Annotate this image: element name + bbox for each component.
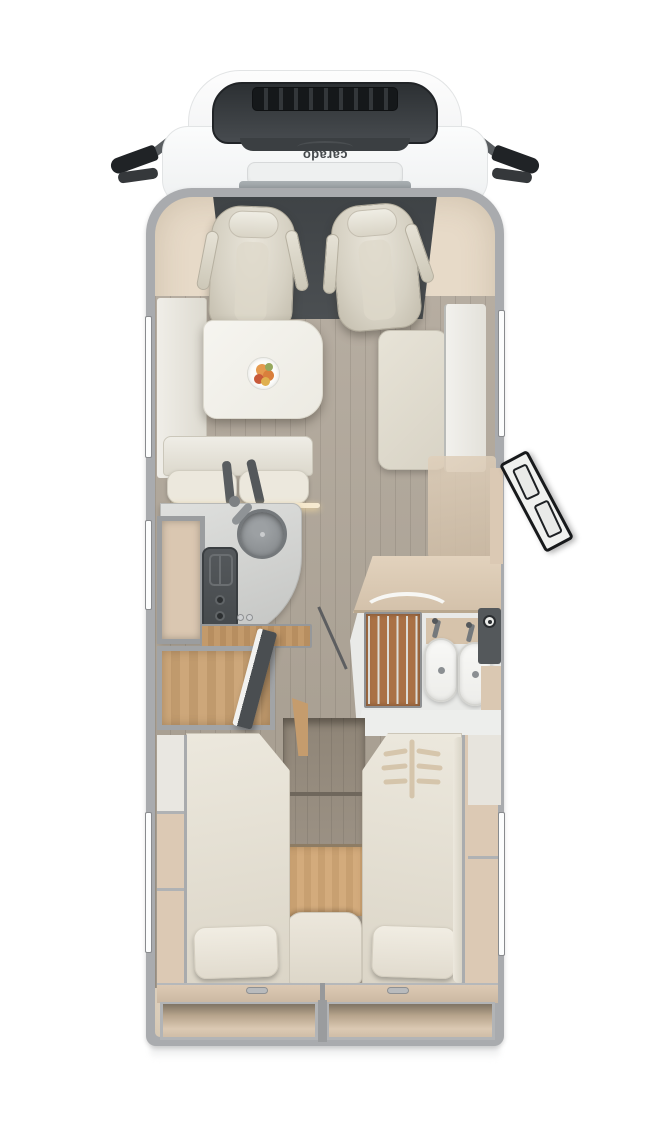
roof-vent-grid bbox=[252, 87, 398, 111]
fruit-plate bbox=[247, 357, 280, 390]
bench-right-cushion bbox=[378, 330, 448, 470]
side-mirror-left bbox=[108, 140, 168, 186]
jar-1 bbox=[237, 614, 244, 621]
motorhome-floorplan: carado bbox=[0, 0, 650, 1140]
burner-2 bbox=[215, 611, 225, 621]
window-left-front bbox=[145, 316, 152, 458]
bathroom bbox=[350, 556, 501, 736]
rear-storage-left bbox=[160, 1002, 318, 1040]
entry-floor-wedge bbox=[428, 456, 496, 558]
bathroom-ledge bbox=[356, 710, 501, 736]
storage-shelves-left bbox=[157, 735, 187, 985]
step-ledge bbox=[285, 792, 363, 796]
driver-seat bbox=[208, 205, 296, 334]
doorway-gap bbox=[490, 468, 503, 564]
shelf-left-top bbox=[157, 735, 184, 811]
jar-2 bbox=[246, 614, 253, 621]
window-left-rear bbox=[145, 812, 152, 953]
bath-knob-1 bbox=[432, 618, 438, 624]
door-window-2 bbox=[533, 499, 563, 538]
window-left-mid bbox=[145, 520, 152, 610]
dinette-table bbox=[203, 320, 323, 419]
window-right-rear bbox=[498, 812, 505, 956]
bathroom-cabinet bbox=[478, 608, 501, 664]
shelf-left-div2 bbox=[157, 888, 184, 891]
bathroom-shelf bbox=[481, 666, 501, 712]
brand-logo: carado bbox=[289, 145, 361, 163]
fruit-4 bbox=[265, 363, 273, 371]
bench-right-panel bbox=[444, 304, 486, 472]
pillow-left bbox=[193, 925, 279, 980]
deck-handle-left bbox=[246, 987, 268, 994]
cabinet-roll-holder bbox=[483, 615, 496, 628]
aisle-back-wall bbox=[283, 718, 365, 846]
seat-stripe bbox=[358, 239, 397, 321]
shelf-left-div1 bbox=[157, 811, 184, 814]
pillow-right bbox=[371, 925, 457, 980]
stove-grate bbox=[209, 554, 233, 586]
bed-deck bbox=[157, 983, 498, 1003]
storage-shelves-right bbox=[462, 735, 498, 985]
vehicle-shadow bbox=[150, 1044, 500, 1058]
rear-storage-divider bbox=[318, 1000, 327, 1042]
shower-teak-grate bbox=[364, 612, 422, 708]
shelf-right-div bbox=[468, 856, 501, 859]
deck-handle-right bbox=[387, 987, 409, 994]
toilet bbox=[424, 638, 458, 702]
burner-1 bbox=[215, 595, 225, 605]
center-steps-wood bbox=[283, 844, 365, 916]
seat-stripe bbox=[234, 241, 269, 322]
quilt-pattern bbox=[372, 738, 452, 800]
step-cushion bbox=[286, 912, 362, 984]
entry-door-open bbox=[499, 450, 574, 553]
shelf-right-top bbox=[468, 735, 501, 805]
bath-knob-2 bbox=[466, 622, 472, 628]
stove bbox=[202, 547, 238, 631]
passenger-seat bbox=[329, 201, 424, 334]
fruit-5 bbox=[261, 377, 270, 386]
side-mirror-right bbox=[482, 140, 542, 186]
rear-storage-right bbox=[326, 1002, 495, 1040]
window-right-front bbox=[498, 310, 505, 437]
seat-headrest bbox=[228, 210, 279, 239]
door-window-1 bbox=[512, 463, 541, 501]
logo-swoosh bbox=[297, 141, 353, 153]
sink-faucet-base bbox=[229, 496, 240, 507]
kitchen-tall-cabinet bbox=[157, 516, 205, 644]
